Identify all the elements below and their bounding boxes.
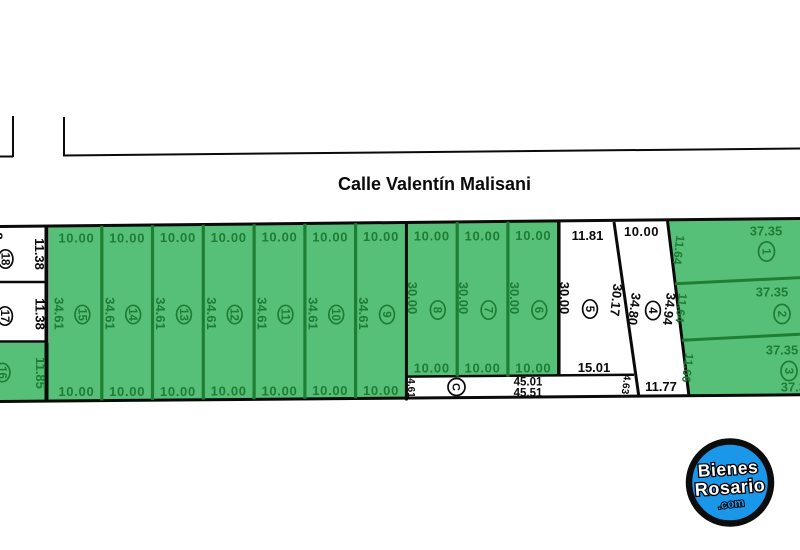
svg-text:45.51: 45.51 bbox=[514, 388, 543, 400]
svg-text:8: 8 bbox=[0, 232, 5, 239]
svg-text:10.00: 10.00 bbox=[515, 361, 551, 376]
svg-text:11.85: 11.85 bbox=[33, 357, 48, 389]
svg-text:10.00: 10.00 bbox=[624, 224, 659, 239]
svg-text:12: 12 bbox=[228, 308, 240, 321]
svg-text:10.00: 10.00 bbox=[515, 228, 551, 243]
svg-text:8: 8 bbox=[431, 307, 443, 314]
svg-text:34.61: 34.61 bbox=[255, 297, 270, 330]
svg-text:37.35: 37.35 bbox=[750, 224, 783, 239]
svg-text:10.00: 10.00 bbox=[160, 384, 196, 399]
svg-text:2: 2 bbox=[775, 311, 787, 317]
svg-text:34.61: 34.61 bbox=[102, 297, 117, 330]
svg-text:10.00: 10.00 bbox=[261, 230, 297, 245]
svg-text:10.00: 10.00 bbox=[465, 228, 501, 243]
svg-text:30.00: 30.00 bbox=[456, 282, 471, 315]
svg-text:10: 10 bbox=[329, 308, 341, 321]
svg-text:30.00: 30.00 bbox=[507, 282, 522, 315]
svg-text:34.61: 34.61 bbox=[52, 297, 67, 330]
svg-text:3: 3 bbox=[782, 368, 794, 374]
svg-text:30.00: 30.00 bbox=[405, 282, 420, 315]
svg-text:1: 1 bbox=[759, 248, 771, 255]
svg-text:10.00: 10.00 bbox=[312, 229, 348, 244]
svg-text:C: C bbox=[450, 383, 462, 391]
svg-text:18: 18 bbox=[0, 253, 10, 266]
svg-text:11.81: 11.81 bbox=[572, 228, 604, 243]
svg-text:4.61: 4.61 bbox=[405, 378, 416, 398]
svg-text:Calle Valentín Malisani: Calle Valentín Malisani bbox=[338, 174, 531, 194]
svg-text:13: 13 bbox=[177, 308, 189, 321]
svg-text:10.00: 10.00 bbox=[58, 384, 94, 399]
svg-text:4: 4 bbox=[646, 307, 658, 314]
svg-text:37.35: 37.35 bbox=[756, 285, 789, 300]
svg-text:15: 15 bbox=[75, 308, 87, 321]
svg-text:17: 17 bbox=[0, 310, 10, 323]
svg-text:10.00: 10.00 bbox=[414, 361, 450, 376]
svg-text:10.00: 10.00 bbox=[58, 231, 94, 246]
svg-text:34.61: 34.61 bbox=[305, 297, 320, 330]
svg-text:34.61: 34.61 bbox=[356, 297, 371, 330]
svg-text:9: 9 bbox=[380, 311, 392, 317]
svg-text:10.00: 10.00 bbox=[465, 361, 501, 376]
svg-text:34.61: 34.61 bbox=[153, 297, 168, 330]
svg-text:30.00: 30.00 bbox=[557, 282, 572, 315]
svg-text:7: 7 bbox=[481, 307, 493, 313]
svg-text:15.01: 15.01 bbox=[578, 360, 611, 375]
svg-text:10.00: 10.00 bbox=[211, 384, 247, 399]
svg-text:6: 6 bbox=[532, 307, 544, 313]
svg-text:14: 14 bbox=[126, 308, 138, 321]
svg-text:10.00: 10.00 bbox=[363, 383, 399, 398]
svg-text:11.38: 11.38 bbox=[32, 298, 47, 330]
svg-text:16: 16 bbox=[0, 366, 7, 379]
svg-text:10.00: 10.00 bbox=[109, 230, 145, 245]
svg-text:11: 11 bbox=[278, 308, 290, 321]
svg-text:37.35: 37.35 bbox=[766, 343, 799, 358]
svg-text:10.00: 10.00 bbox=[312, 383, 348, 398]
svg-text:10.00: 10.00 bbox=[261, 383, 297, 398]
svg-text:11.77: 11.77 bbox=[645, 379, 677, 394]
svg-text:10.00: 10.00 bbox=[414, 229, 450, 244]
svg-text:11.38: 11.38 bbox=[32, 238, 47, 270]
svg-text:34.61: 34.61 bbox=[204, 297, 219, 330]
svg-text:5: 5 bbox=[583, 306, 595, 313]
svg-text:37.35: 37.35 bbox=[781, 380, 800, 395]
svg-text:10.00: 10.00 bbox=[109, 384, 145, 399]
svg-text:10.00: 10.00 bbox=[211, 230, 247, 245]
svg-text:10.00: 10.00 bbox=[160, 230, 196, 245]
svg-text:10.00: 10.00 bbox=[363, 229, 399, 244]
